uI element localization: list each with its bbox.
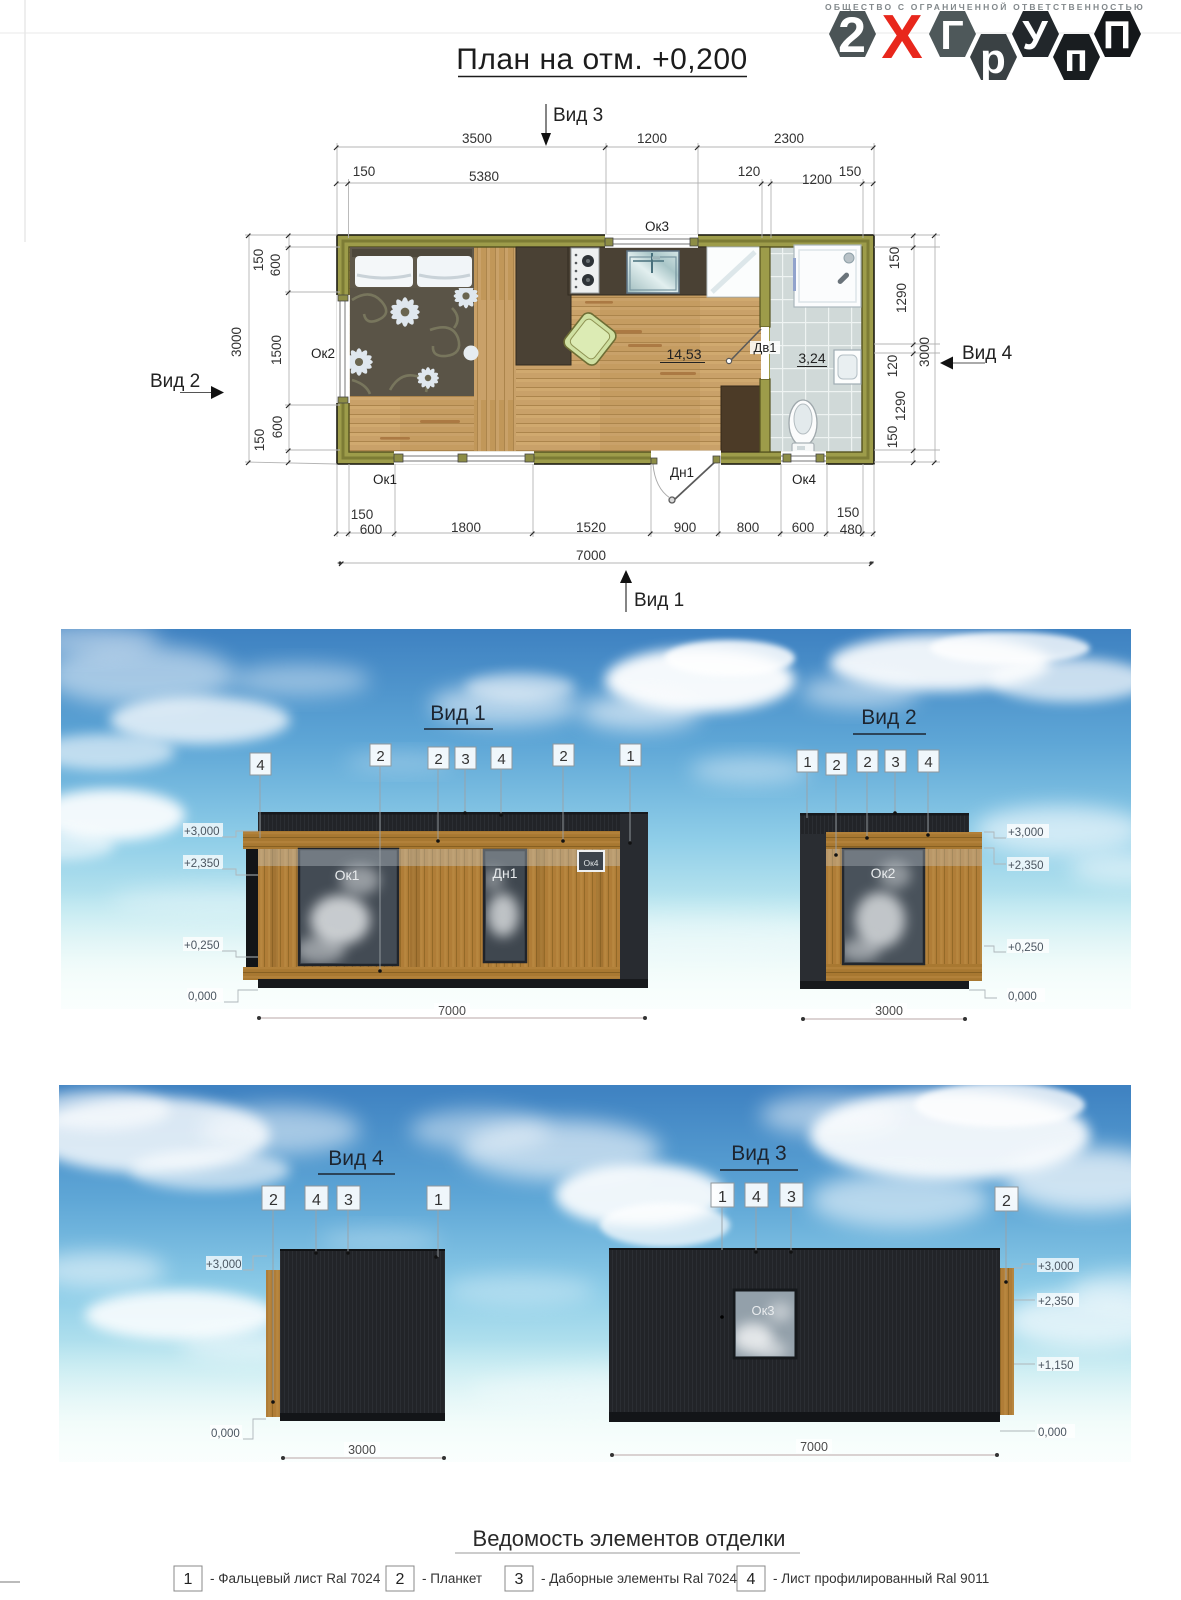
svg-text:Ок2: Ок2 [871, 865, 896, 881]
svg-text:150: 150 [887, 247, 902, 270]
svg-text:Ок3: Ок3 [645, 219, 669, 234]
svg-text:4: 4 [256, 757, 264, 774]
svg-text:Вид 2: Вид 2 [150, 371, 200, 392]
svg-text:+3,000: +3,000 [1038, 1261, 1074, 1273]
svg-text:0,000: 0,000 [211, 1428, 240, 1440]
svg-text:+0,250: +0,250 [1008, 942, 1044, 954]
svg-text:3000: 3000 [917, 337, 932, 367]
svg-text:600: 600 [360, 522, 383, 537]
svg-text:У: У [1022, 12, 1048, 58]
svg-text:Вид 3: Вид 3 [553, 105, 603, 126]
svg-text:2: 2 [269, 1192, 278, 1209]
svg-text:4: 4 [497, 751, 505, 768]
svg-text:Дн1: Дн1 [670, 465, 694, 480]
svg-text:3000: 3000 [875, 1004, 903, 1018]
svg-text:2: 2 [832, 757, 840, 774]
svg-text:+2,350: +2,350 [1008, 860, 1044, 872]
svg-text:600: 600 [270, 416, 285, 439]
svg-text:5380: 5380 [469, 169, 499, 184]
svg-text:2: 2 [1002, 1193, 1011, 1210]
svg-text:150: 150 [251, 249, 266, 272]
svg-text:600: 600 [268, 254, 283, 277]
svg-text:3,24: 3,24 [798, 350, 825, 366]
svg-text:Вид 1: Вид 1 [430, 702, 486, 725]
svg-text:Ок2: Ок2 [311, 346, 335, 361]
svg-text:+1,150: +1,150 [1038, 1360, 1074, 1372]
svg-text:600: 600 [792, 520, 815, 535]
svg-text:План на отм. +0,200: План на отм. +0,200 [456, 43, 747, 76]
svg-text:150: 150 [351, 507, 374, 522]
svg-text:1520: 1520 [576, 520, 606, 535]
svg-text:1: 1 [434, 1192, 443, 1209]
svg-text:1800: 1800 [451, 520, 481, 535]
svg-text:2300: 2300 [774, 131, 804, 146]
svg-text:150: 150 [252, 429, 267, 452]
svg-text:2: 2 [838, 7, 866, 63]
svg-text:900: 900 [674, 520, 697, 535]
svg-text:+3,000: +3,000 [1008, 827, 1044, 839]
svg-text:Ок3: Ок3 [751, 1303, 774, 1318]
svg-text:- Планкет: - Планкет [422, 1571, 482, 1586]
svg-text:800: 800 [737, 520, 760, 535]
svg-text:1200: 1200 [802, 172, 832, 187]
svg-text:2: 2 [396, 1571, 405, 1588]
svg-text:р: р [980, 35, 1006, 82]
svg-text:- Даборные элементы Ral 7024: - Даборные элементы Ral 7024 [541, 1571, 737, 1586]
svg-text:4: 4 [312, 1192, 321, 1209]
svg-text:3: 3 [515, 1571, 524, 1588]
svg-text:150: 150 [837, 505, 860, 520]
svg-text:4: 4 [752, 1189, 761, 1206]
svg-text:3000: 3000 [229, 327, 244, 357]
svg-text:7000: 7000 [438, 1004, 466, 1018]
svg-text:Вид 4: Вид 4 [962, 343, 1013, 364]
svg-text:- Фальцевый лист Ral 7024: - Фальцевый лист Ral 7024 [210, 1571, 381, 1586]
svg-text:+3,000: +3,000 [206, 1259, 242, 1271]
svg-text:120: 120 [885, 355, 900, 378]
svg-text:Вид 2: Вид 2 [861, 706, 917, 729]
svg-text:1290: 1290 [893, 391, 908, 421]
svg-text:п: п [1064, 37, 1088, 80]
svg-text:480: 480 [840, 522, 863, 537]
svg-text:1290: 1290 [894, 283, 909, 313]
svg-text:120: 120 [738, 164, 761, 179]
svg-text:1: 1 [803, 754, 811, 771]
svg-text:0,000: 0,000 [1038, 1427, 1067, 1439]
svg-text:Вид 4: Вид 4 [328, 1147, 384, 1170]
svg-text:7000: 7000 [576, 548, 606, 563]
svg-text:3500: 3500 [462, 131, 492, 146]
svg-text:Дв1: Дв1 [754, 340, 777, 355]
svg-text:+3,000: +3,000 [184, 826, 220, 838]
svg-text:+0,250: +0,250 [184, 940, 220, 952]
svg-text:150: 150 [353, 164, 376, 179]
svg-text:150: 150 [839, 164, 862, 179]
svg-text:1500: 1500 [269, 335, 284, 365]
svg-text:Ок4: Ок4 [792, 472, 816, 487]
svg-text:Ок4: Ок4 [583, 858, 598, 868]
svg-text:3000: 3000 [348, 1443, 376, 1457]
svg-text:Дн1: Дн1 [493, 865, 518, 881]
svg-text:+2,350: +2,350 [1038, 1296, 1074, 1308]
svg-text:Г: Г [940, 12, 963, 58]
svg-text:+2,350: +2,350 [184, 858, 220, 870]
svg-text:3: 3 [787, 1189, 796, 1206]
svg-text:150: 150 [885, 426, 900, 449]
svg-text:3: 3 [461, 751, 469, 768]
svg-text:Ок1: Ок1 [335, 867, 360, 883]
svg-text:1200: 1200 [637, 131, 667, 146]
svg-text:Х: Х [881, 3, 922, 72]
svg-text:Ведомость элементов отделки: Ведомость элементов отделки [473, 1526, 786, 1551]
svg-text:- Лист профилированный Ral 901: - Лист профилированный Ral 9011 [773, 1571, 989, 1586]
svg-text:0,000: 0,000 [188, 991, 217, 1003]
svg-text:3: 3 [891, 754, 899, 771]
svg-text:4: 4 [747, 1571, 756, 1588]
svg-text:ОБЩЕСТВО С ОГРАНИЧЕННОЙ ОТВЕТС: ОБЩЕСТВО С ОГРАНИЧЕННОЙ ОТВЕТСТВЕННОСТЬЮ [825, 1, 1145, 12]
svg-text:0,000: 0,000 [1008, 991, 1037, 1003]
svg-text:Ок1: Ок1 [373, 472, 397, 487]
svg-text:7000: 7000 [800, 1440, 828, 1454]
svg-text:Вид 1: Вид 1 [634, 590, 684, 611]
svg-text:4: 4 [924, 754, 932, 771]
svg-text:П: П [1103, 14, 1131, 57]
svg-text:1: 1 [184, 1571, 193, 1588]
svg-text:2: 2 [863, 754, 871, 771]
svg-text:Вид 3: Вид 3 [731, 1142, 787, 1165]
svg-text:2: 2 [559, 748, 567, 765]
svg-text:14,53: 14,53 [666, 346, 701, 362]
svg-text:3: 3 [344, 1192, 353, 1209]
svg-text:1: 1 [718, 1189, 727, 1206]
svg-text:1: 1 [626, 748, 634, 765]
svg-text:2: 2 [434, 751, 442, 768]
svg-text:2: 2 [376, 748, 384, 765]
